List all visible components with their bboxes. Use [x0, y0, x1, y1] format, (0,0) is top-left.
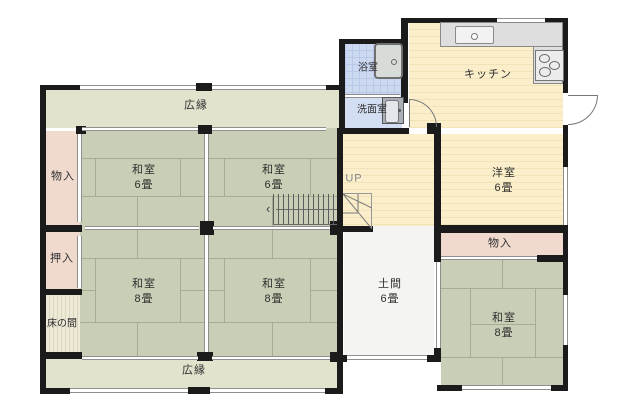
sliding-door: [212, 127, 326, 131]
floor-plan: ‹ 広縁 広縁 物入 押入 床の間 和室 6畳 和室 6畳 和室 8畳: [0, 0, 640, 411]
room-size: 6畳: [132, 178, 156, 193]
room-size: 8畳: [132, 292, 156, 307]
winder-lines-icon: [343, 194, 372, 229]
label-washitsu8-east: 和室 8畳: [492, 311, 516, 341]
tatami-mat-line: [80, 322, 207, 323]
stove-burner-icon: [549, 61, 560, 70]
window: [80, 85, 196, 90]
tatami-mat-line: [207, 290, 224, 291]
tatami-mat-line: [535, 288, 536, 357]
entrance-door-swing-icon: [568, 95, 598, 125]
tatami-mat-line: [80, 258, 207, 259]
label-washitsu8-left: 和室 8畳: [132, 277, 156, 307]
window: [462, 385, 551, 390]
wall-segment: [40, 225, 82, 232]
staircase-winder: [343, 193, 372, 228]
wall-segment: [188, 387, 210, 394]
wall-segment: [563, 125, 568, 167]
tatami-mat-line: [470, 288, 471, 357]
sliding-door: [77, 134, 82, 222]
sliding-door: [436, 262, 441, 348]
label-tokonoma: 床の間: [47, 317, 77, 332]
label-bathroom: 浴室: [358, 61, 378, 76]
tatami-mat-line: [137, 322, 138, 358]
tatami-mat-line: [224, 258, 225, 322]
label-washitsu8-right: 和室 8畳: [262, 277, 286, 307]
window: [347, 355, 427, 360]
wall-segment: [339, 128, 409, 134]
window: [70, 388, 188, 393]
tatami-mat-line: [310, 290, 337, 291]
wall-segment: [40, 85, 46, 393]
label-storage-right: 物入: [488, 237, 512, 252]
tatami-mat-line: [441, 288, 563, 289]
wall-segment: [40, 352, 82, 359]
window: [563, 167, 568, 225]
label-washroom: 洗面室: [357, 103, 387, 118]
label-oshiire: 押入: [50, 252, 74, 267]
wall-segment: [337, 355, 347, 362]
room-name: 和室: [492, 311, 516, 326]
wall-segment: [197, 352, 213, 361]
staircase-centerline: [276, 209, 337, 210]
room-name: 和室: [132, 163, 156, 178]
window: [563, 295, 568, 345]
wall-segment: [551, 385, 568, 391]
wall-segment: [337, 128, 343, 393]
room-name: 和室: [262, 163, 286, 178]
wall-segment: [200, 221, 214, 235]
stairs-direction-arrow: ‹: [266, 204, 270, 214]
wall-segment: [434, 348, 441, 362]
wall-segment: [196, 83, 212, 91]
label-washitsu6-right: 和室 6畳: [262, 163, 286, 193]
wall-segment: [198, 125, 212, 134]
tatami-mat-line: [80, 158, 207, 159]
tatami-mat-line: [310, 158, 311, 196]
staircase-edge: [273, 224, 337, 225]
tatami-mat-line: [95, 258, 96, 322]
sliding-door: [212, 356, 330, 360]
tatami-mat-line: [80, 196, 207, 197]
label-stairs-up: UP: [345, 172, 362, 187]
room-name: 和室: [262, 277, 286, 292]
bathtub-drain-icon: [391, 59, 397, 65]
tatami-mat-line: [272, 322, 273, 358]
room-size: 8畳: [262, 292, 286, 307]
room-size: 6畳: [492, 181, 516, 196]
label-storage-left: 物入: [51, 170, 75, 185]
wall-segment: [40, 388, 70, 394]
label-engawa-top: 広縁: [184, 99, 208, 114]
wall-segment: [537, 255, 568, 262]
washbasin-faucet-icon: [398, 109, 401, 112]
washbasin-bowl-icon: [385, 100, 399, 123]
room-name: 洋室: [492, 166, 516, 181]
tatami-mat-line: [95, 158, 96, 196]
sliding-door: [82, 127, 198, 131]
tatami-mat-line: [272, 226, 273, 258]
wall-segment: [437, 385, 462, 391]
label-youshitsu: 洋室 6畳: [492, 166, 516, 196]
stove-burner-icon: [539, 54, 550, 63]
kitchen-faucet-icon: [471, 33, 478, 40]
tatami-mat-line: [137, 196, 138, 226]
wall-segment: [40, 85, 80, 90]
window: [210, 388, 325, 393]
tatami-mat-line: [224, 158, 225, 196]
wall-segment: [434, 225, 568, 233]
label-kitchen: キッチン: [464, 68, 512, 83]
stove-burner-icon: [539, 67, 551, 77]
wall-segment: [563, 345, 568, 390]
label-engawa-bottom: 広縁: [182, 364, 206, 379]
sliding-door: [82, 356, 198, 360]
wall-segment: [434, 128, 441, 262]
room-size: 6畳: [262, 178, 286, 193]
room-name: 和室: [132, 277, 156, 292]
wall-segment: [339, 39, 345, 130]
tatami-mat-line: [502, 357, 503, 385]
room-name: 土間: [378, 277, 402, 292]
tatami-mat-line: [80, 290, 95, 291]
sliding-door: [204, 235, 209, 352]
tatami-mat-line: [502, 258, 503, 288]
window: [212, 85, 326, 90]
bathtub-icon: [374, 43, 403, 79]
sliding-door: [77, 236, 82, 288]
tatami-mat-line: [180, 290, 207, 291]
sliding-door: [85, 226, 199, 230]
label-washitsu6-left: 和室 6畳: [132, 163, 156, 193]
tatami-mat-line: [207, 258, 337, 259]
sliding-door: [441, 256, 537, 260]
tatami-mat-line: [180, 158, 181, 196]
room-size: 6畳: [378, 292, 402, 307]
tatami-mat-line: [207, 158, 337, 159]
stove-3-burner-icon: [535, 50, 564, 81]
room-size: 8畳: [492, 326, 516, 341]
sliding-door: [213, 226, 330, 230]
kitchen-sink-icon: [455, 26, 494, 44]
wall-segment: [40, 289, 82, 295]
label-doma: 土間 6畳: [378, 277, 402, 307]
tatami-mat-line: [137, 226, 138, 258]
sliding-door: [204, 134, 209, 221]
